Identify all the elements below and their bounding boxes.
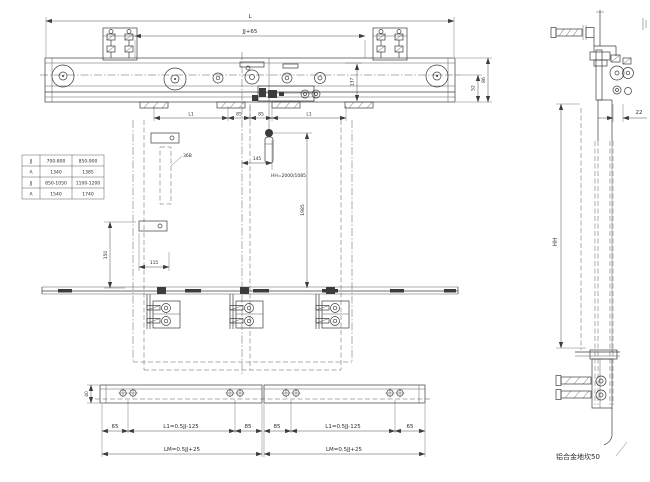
dim-label-beam-height: 86 (481, 77, 487, 83)
part-label: 36B (183, 153, 192, 159)
dim-label-l1-left: L1 (188, 112, 194, 118)
size-table: JJ 700-800 850-900 A 1340 1385 JJ 850-10… (22, 155, 104, 199)
dim-label-65-left: 65 (112, 424, 119, 430)
dim-label-85-left: 85 (236, 112, 242, 118)
dim-label-1985: 1985 (300, 204, 306, 216)
dim-label-opening: JJ+65 (242, 29, 258, 35)
cad-drawing: JJ 700-800 850-900 A 1340 1385 JJ 850-10… (0, 0, 650, 482)
table-cell: 850-900 (79, 159, 98, 165)
drawing-canvas: JJ 700-800 850-900 A 1340 1385 JJ 850-10… (0, 0, 650, 482)
dim-label-115: 115 (150, 260, 159, 266)
sill-bracket-1 (147, 287, 180, 329)
dim-label-22: 22 (636, 110, 643, 116)
dim-label-l1-right: L1 (306, 112, 312, 118)
dim-label-85-right: 85 (258, 112, 264, 118)
dim-label-hh: HH (552, 237, 559, 246)
dim-label-lm-left: LM=0.5JJ+25 (164, 447, 201, 453)
dim-label-lm-right: LM=0.5JJ+25 (326, 447, 363, 453)
bottom-view: 40 65 L1=0.5JJ-125 85 85 L1=0.5JJ-125 65… (84, 385, 430, 457)
sill-bracket-3 (316, 287, 349, 329)
table-cell: 700-800 (47, 159, 66, 165)
dim-label-85-right: 85 (274, 424, 281, 430)
dim-label-40: 40 (84, 391, 90, 397)
dim-label-150: 150 (103, 251, 109, 260)
dim-label-145: 145 (253, 156, 262, 162)
table-cell: A (29, 192, 33, 198)
table-cell: 1385 (82, 170, 94, 176)
door-hanger-tabs (140, 102, 373, 108)
dim-drop-height: 1985 (273, 133, 312, 288)
table-cell: 850-1050 (45, 181, 67, 187)
dim-opening-width: JJ+65 (135, 29, 365, 58)
dim-row-1: 65 L1=0.5JJ-125 85 85 L1=0.5JJ-125 65 (102, 424, 425, 431)
dim-beam-height: 86 (456, 58, 492, 102)
dim-depth: 40 (84, 385, 99, 403)
hanger-bracket-right (373, 28, 407, 60)
table-cell: 1740 (82, 192, 94, 198)
tension-part: 36B (139, 133, 192, 231)
dim-label-hanger-height: 137 (350, 78, 356, 87)
dim-bracket-inset: 115 (139, 233, 169, 271)
dim-row-2: LM=0.5JJ+25 LM=0.5JJ+25 (102, 447, 425, 454)
table-cell: JJ (29, 159, 33, 165)
table-cell: 1540 (50, 192, 62, 198)
operator-beam (40, 58, 460, 102)
sill-bracket-2 (230, 287, 263, 329)
note-door-height: HH=2000/1085 (271, 173, 306, 179)
sill-section: 铝合金地坎50 (556, 350, 627, 461)
dim-rail-height: 52 (456, 75, 482, 102)
dim-label-l1-formula-right: L1=0.5JJ-125 (325, 424, 361, 430)
dim-label-65-right: 65 (407, 424, 414, 430)
table-cell: A (29, 170, 33, 176)
dim-hanger-height: 137 (345, 63, 362, 101)
bolt-holes (119, 389, 405, 398)
track-and-rollers (590, 50, 634, 100)
table-cell: JJ (29, 181, 33, 187)
dim-label-l1-formula-left: L1=0.5JJ-125 (163, 424, 199, 430)
drive-mechanism (164, 58, 326, 102)
table-cell: 1340 (50, 170, 62, 176)
table-cell: 1100-1200 (76, 181, 101, 187)
dim-bracket-drop: 150 (103, 222, 136, 288)
dim-label-rail: 52 (471, 85, 477, 91)
hanger-bracket-left (103, 28, 137, 60)
dim-door-gap: 22 (598, 104, 647, 122)
sill-material-note: 铝合金地坎50 (556, 452, 600, 461)
right-pulley (426, 65, 448, 87)
dim-cam-offset: 145 (242, 140, 272, 170)
dim-label-overall: L (248, 14, 252, 20)
top-bracket (551, 10, 646, 56)
side-view: 22 HH 铝合金地坎50 (551, 10, 647, 461)
left-pulley (52, 65, 74, 87)
dim-label-85-left: 85 (245, 424, 252, 430)
